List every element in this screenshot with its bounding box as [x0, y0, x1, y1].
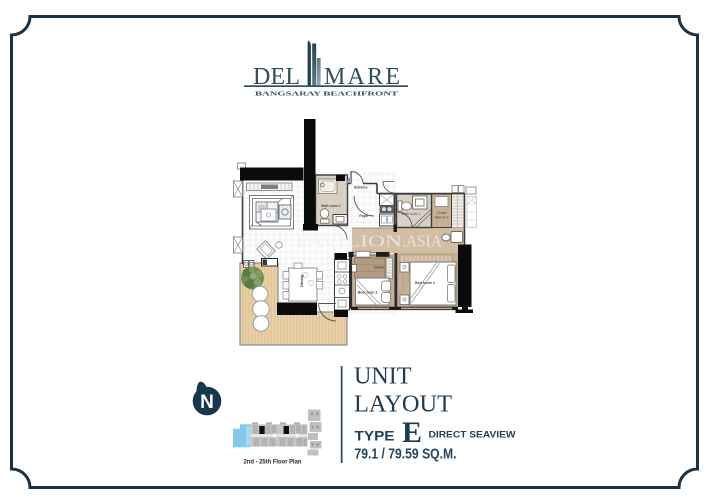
svg-text:LAYOUT: LAYOUT — [354, 392, 452, 418]
svg-text:Closet: Closet — [374, 266, 385, 270]
svg-text:TYPE: TYPE — [355, 428, 395, 444]
svg-text:Bath room 2: Bath room 2 — [321, 204, 340, 208]
svg-text:79.1 / 79.59 SQ.M.: 79.1 / 79.59 SQ.M. — [355, 446, 457, 463]
svg-text:PAVILION: PAVILION — [296, 232, 402, 251]
svg-text:DIRECT SEAVIEW: DIRECT SEAVIEW — [429, 430, 517, 440]
svg-text:Bed room 2: Bed room 2 — [358, 291, 378, 295]
svg-text:Dining: Dining — [299, 274, 304, 287]
svg-text:.ASIA: .ASIA — [402, 232, 442, 251]
svg-text:Walk-in 2: Walk-in 2 — [434, 216, 448, 220]
svg-text:Entrance: Entrance — [354, 186, 368, 190]
svg-text:Bed room 1: Bed room 1 — [415, 281, 435, 285]
svg-text:Closet: Closet — [437, 211, 447, 215]
svg-text:Foyer: Foyer — [359, 214, 369, 218]
svg-text:E: E — [402, 416, 422, 449]
svg-text:UNIT: UNIT — [354, 364, 412, 390]
svg-text:N: N — [200, 392, 214, 413]
svg-text:2nd - 25th Floor Plan: 2nd - 25th Floor Plan — [244, 459, 302, 466]
svg-text:BANGSARAY BEACHFRONT: BANGSARAY BEACHFRONT — [255, 90, 399, 97]
